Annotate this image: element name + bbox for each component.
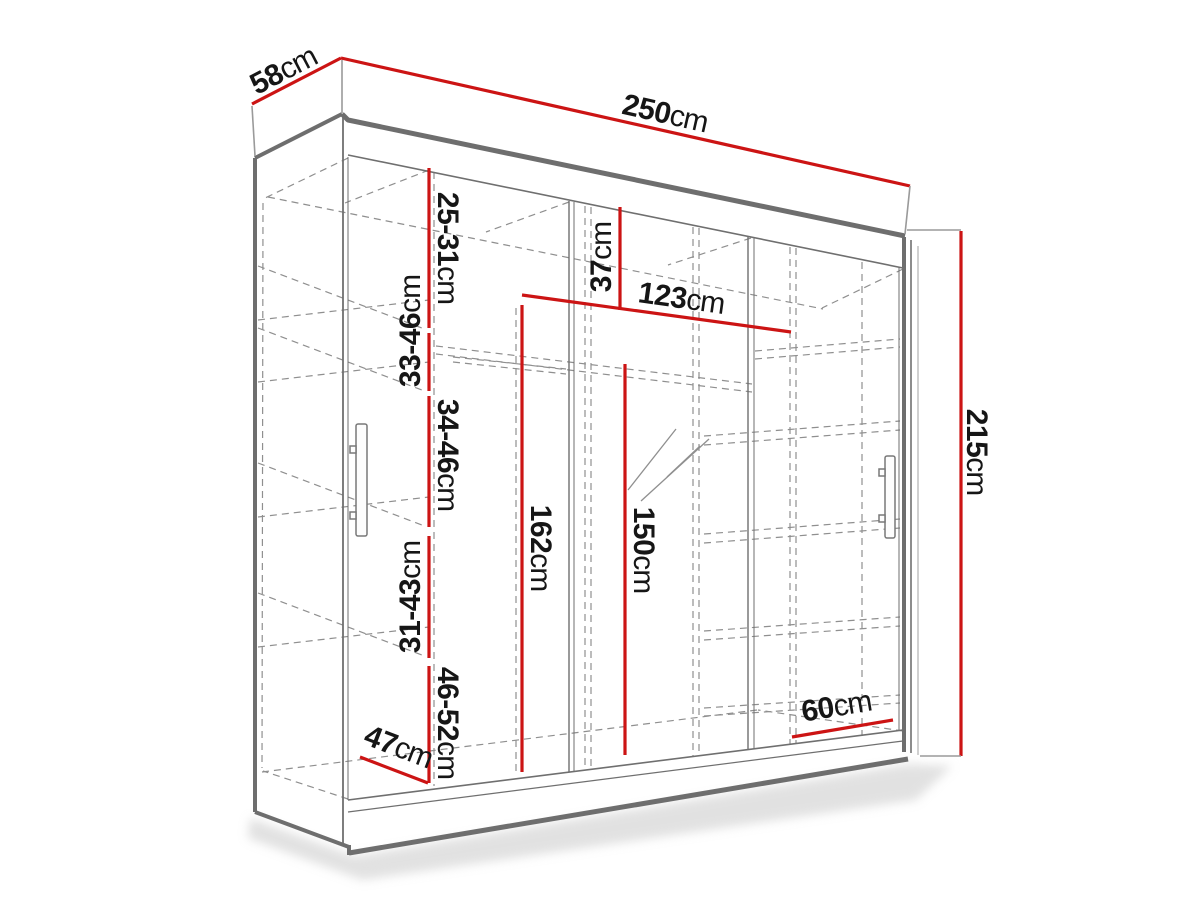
top-left-depth-edge bbox=[255, 114, 342, 158]
top-section-label: 37cm bbox=[585, 222, 618, 292]
hidden-edge bbox=[486, 202, 569, 232]
floor-shadow bbox=[248, 764, 952, 880]
height-value: 215 bbox=[960, 409, 993, 458]
handle-mount bbox=[350, 446, 356, 453]
gap4-unit: cm bbox=[394, 541, 427, 579]
width-value: 250 bbox=[619, 88, 674, 131]
hidden-edge bbox=[262, 203, 263, 768]
shelf-line bbox=[258, 463, 422, 525]
gap5-value: 46-52 bbox=[431, 667, 464, 741]
gap3-label: 34-46cm bbox=[431, 399, 464, 511]
shelf-line bbox=[704, 421, 900, 436]
inner-width-label: 123cm bbox=[636, 276, 726, 321]
height-label: 215cm bbox=[960, 409, 993, 496]
handle-mount bbox=[879, 515, 885, 522]
hidden-edge bbox=[262, 710, 757, 772]
gap3-unit: cm bbox=[431, 473, 464, 511]
gap2-value: 33-46 bbox=[394, 313, 427, 387]
hang-left-value: 162 bbox=[524, 505, 557, 554]
inner-width-unit: cm bbox=[684, 283, 726, 321]
floor-right-label: 60cm bbox=[799, 685, 874, 729]
hang-left-label: 162cm bbox=[524, 505, 557, 592]
right-door-handle bbox=[879, 456, 895, 538]
top-front-edge bbox=[342, 114, 905, 236]
floor-right-unit: cm bbox=[831, 685, 874, 724]
wardrobe-dimension-diagram: 58cm 250cm 215cm 25-31cm 33-46cm 34-46cm… bbox=[0, 0, 1200, 900]
gap4-value: 31-43 bbox=[394, 579, 427, 653]
gap1-unit: cm bbox=[431, 266, 464, 304]
shelf-line bbox=[704, 617, 900, 631]
sliding-doors bbox=[343, 117, 903, 845]
hidden-edge bbox=[668, 238, 751, 265]
tick bbox=[252, 106, 255, 156]
hang-right-unit: cm bbox=[627, 555, 660, 593]
hidden-edge bbox=[268, 197, 823, 309]
dimension-ticks bbox=[252, 60, 961, 756]
shelf-line bbox=[755, 347, 900, 359]
gap3-value: 34-46 bbox=[431, 399, 464, 473]
diagram-canvas: 58cm 250cm 215cm 25-31cm 33-46cm 34-46cm… bbox=[0, 0, 1200, 900]
shelf-line bbox=[704, 519, 900, 534]
handle-mount bbox=[350, 512, 356, 519]
hang-right-value: 150 bbox=[627, 507, 660, 556]
gap2-label: 33-46cm bbox=[394, 275, 427, 387]
handle-bar bbox=[885, 456, 895, 538]
gap1-value: 25-31 bbox=[431, 192, 464, 266]
handle-mount bbox=[879, 469, 885, 476]
mirror-glint bbox=[667, 446, 700, 477]
handle-bar bbox=[356, 424, 367, 536]
hang-left-unit: cm bbox=[524, 553, 557, 591]
dimension-lines bbox=[252, 58, 961, 783]
gap5-label: 46-52cm bbox=[431, 667, 464, 779]
hidden-edge bbox=[263, 771, 348, 799]
shelf-line bbox=[704, 528, 900, 543]
height-unit: cm bbox=[960, 457, 993, 495]
hidden-edge bbox=[263, 158, 348, 199]
gap2-unit: cm bbox=[394, 275, 427, 313]
top-section-unit: cm bbox=[585, 222, 618, 260]
left-door-handle bbox=[350, 424, 367, 536]
gap1-label: 25-31cm bbox=[431, 192, 464, 304]
depth-label: 58cm bbox=[245, 40, 323, 102]
tick bbox=[905, 186, 910, 234]
hidden-edge bbox=[345, 170, 429, 203]
top-section-value: 37 bbox=[585, 260, 618, 292]
shelf-line bbox=[704, 430, 900, 445]
hang-right-label: 150cm bbox=[627, 507, 660, 594]
gap4-label: 31-43cm bbox=[394, 541, 427, 653]
floor-left-label: 47cm bbox=[360, 719, 438, 775]
inner-width-value: 123 bbox=[636, 276, 689, 315]
floor-right-value: 60 bbox=[799, 691, 836, 729]
shelf-line bbox=[704, 626, 900, 640]
mirror-glint bbox=[628, 429, 676, 490]
width-dimension-line bbox=[341, 58, 910, 186]
dimension-labels: 58cm 250cm 215cm 25-31cm 33-46cm 34-46cm… bbox=[245, 40, 993, 779]
